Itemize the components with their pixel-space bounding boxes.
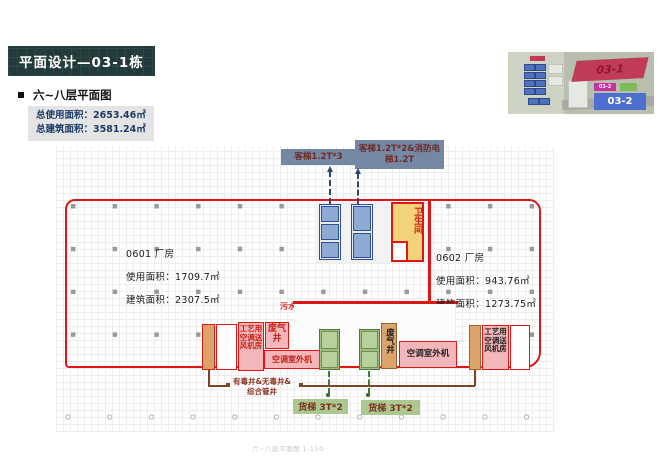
site-building-block bbox=[535, 72, 546, 79]
outdoor-unit-left: 空调室外机 bbox=[264, 350, 320, 369]
site-building-block bbox=[548, 76, 563, 86]
site-building-03-2: 03-2 bbox=[594, 93, 646, 110]
site-building-block bbox=[539, 98, 550, 105]
leader-line bbox=[208, 370, 210, 386]
lift-shaft bbox=[353, 233, 371, 258]
leader-line bbox=[357, 173, 359, 204]
site-building-block bbox=[524, 80, 535, 87]
freight-lift-right-label: 货梯 3T*2 bbox=[361, 400, 420, 415]
leader-dot-icon bbox=[299, 383, 303, 387]
site-green-block bbox=[620, 83, 637, 91]
passenger-lift-bank-right bbox=[351, 204, 373, 260]
site-building-block bbox=[535, 64, 546, 71]
total-usable-area: 总使用面积：2653.46㎡ bbox=[36, 109, 146, 123]
lift-shaft bbox=[321, 242, 339, 258]
drawing-caption: 六~八层平面图 1:150 bbox=[252, 443, 324, 453]
toilet-room: 卫生间 bbox=[391, 202, 424, 262]
ahu-room-right: 工艺用空调送风机房 bbox=[482, 325, 509, 370]
exhaust-shaft-left: 废气井 bbox=[265, 322, 289, 349]
site-building-block bbox=[535, 80, 546, 87]
unit2-name: 0602 厂房 bbox=[436, 250, 484, 264]
leader-line bbox=[368, 371, 370, 394]
page-title: 平面设计—03-1栋 bbox=[8, 46, 155, 76]
shaft-note: 有毒井&无毒井&综合管井 bbox=[230, 377, 294, 397]
unit1-built-area: 建筑面积：2307.5㎡ bbox=[126, 292, 220, 306]
stair-block bbox=[510, 325, 530, 370]
axis-bubbles bbox=[64, 413, 548, 423]
toilet-label: 卫生间 bbox=[412, 207, 421, 234]
section-heading: 六~八层平面图 bbox=[18, 84, 112, 103]
site-building-block bbox=[535, 88, 546, 95]
site-chip-03-2: 03-2 bbox=[594, 83, 616, 91]
lift-shaft bbox=[321, 351, 338, 369]
lift-shaft bbox=[353, 206, 371, 231]
leader-dot-icon bbox=[366, 393, 370, 397]
site-building-block bbox=[530, 56, 545, 61]
leader-line bbox=[208, 385, 228, 387]
site-building-block bbox=[568, 80, 588, 108]
freight-lift-right bbox=[359, 329, 380, 370]
toilet-notch bbox=[393, 241, 408, 260]
unit1-usable-area: 使用面积：1709.7㎡ bbox=[126, 269, 220, 283]
leader-line bbox=[329, 171, 331, 204]
passenger-lift-bank-left bbox=[319, 204, 341, 260]
stair-block bbox=[216, 324, 237, 370]
passenger-lift-right-label: 客梯1.2T*2&消防电梯1.2T bbox=[355, 140, 444, 169]
site-building-block bbox=[548, 64, 563, 74]
leader-arrow-icon bbox=[327, 166, 333, 172]
leader-dot-icon bbox=[326, 393, 330, 397]
bullet-square-icon bbox=[18, 92, 24, 98]
slide-page: 平面设计—03-1栋 六~八层平面图 总使用面积：2653.46㎡ 总建筑面积：… bbox=[0, 0, 657, 463]
area-summary-box: 总使用面积：2653.46㎡ 总建筑面积：3581.24㎡ bbox=[28, 106, 154, 141]
site-building-block bbox=[524, 72, 535, 79]
freight-lift-left-label: 货梯 3T*2 bbox=[293, 399, 348, 414]
passenger-lift-left-label: 客梯1.2T*3 bbox=[281, 149, 356, 165]
section-heading-label: 六~八层平面图 bbox=[33, 88, 112, 102]
exhaust-shaft-center-label: 废气井 bbox=[385, 328, 394, 354]
lift-shaft bbox=[321, 331, 338, 349]
exhaust-shaft-center: 废气井 bbox=[381, 323, 397, 369]
unit1-name: 0601 厂房 bbox=[126, 246, 174, 260]
total-built-area: 总建筑面积：3581.24㎡ bbox=[36, 123, 146, 137]
lift-shaft bbox=[361, 351, 378, 369]
site-building-block bbox=[528, 98, 539, 105]
site-location-map: 03-1 03-2 03-2 bbox=[508, 52, 654, 114]
site-building-block bbox=[524, 64, 535, 71]
lift-shaft bbox=[321, 224, 339, 240]
unit2-usable-area: 使用面积：943.76㎡ bbox=[436, 273, 530, 287]
leader-line bbox=[328, 371, 330, 394]
service-shaft-strip bbox=[469, 325, 481, 370]
ahu-room-left: 工艺用空调送风机房 bbox=[238, 322, 264, 371]
leader-arrow-icon bbox=[355, 168, 361, 174]
lift-shaft bbox=[321, 206, 339, 222]
service-shaft-strip bbox=[202, 324, 215, 370]
outdoor-unit-right: 空调室外机 bbox=[399, 341, 457, 368]
site-building-03-1: 03-1 bbox=[571, 57, 648, 82]
freight-lift-left bbox=[319, 329, 340, 370]
leader-line bbox=[474, 370, 476, 386]
site-building-block bbox=[524, 88, 535, 95]
lift-shaft bbox=[361, 331, 378, 349]
